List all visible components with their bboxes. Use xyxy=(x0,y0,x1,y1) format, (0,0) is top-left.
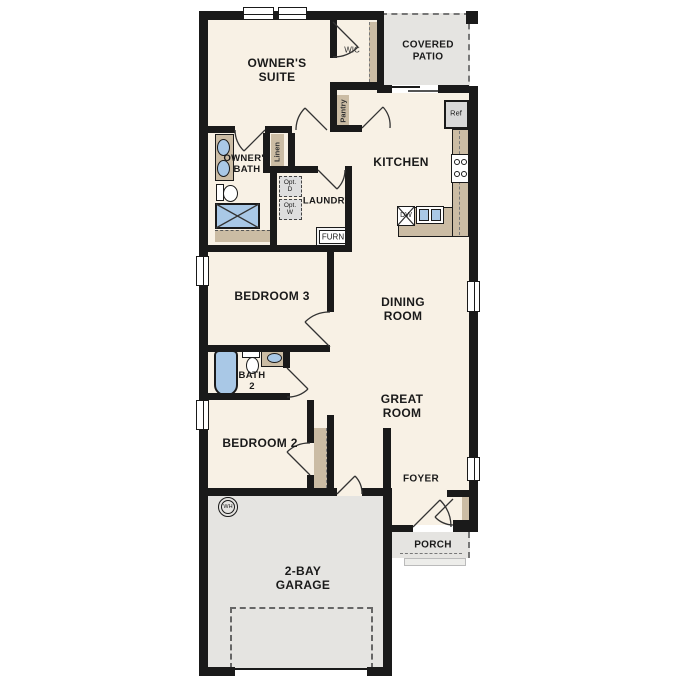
label-bedroom2: BEDROOM 2 xyxy=(222,437,297,451)
label-furn: FURN xyxy=(322,232,344,241)
label-pantry: Pantry xyxy=(339,99,348,122)
label-kitchen: KITCHEN xyxy=(373,156,428,170)
label-owners-bath: OWNER'S BATH xyxy=(223,154,270,176)
label-garage: 2-BAY GARAGE xyxy=(276,565,330,593)
label-bedroom3: BEDROOM 3 xyxy=(234,290,309,304)
door-arc-laundry xyxy=(318,170,345,189)
label-owners-suite: OWNER'S SUITE xyxy=(248,57,307,85)
door-arc-owners-suite xyxy=(296,108,327,130)
label-water-heater: WH xyxy=(223,504,232,510)
label-covered-patio: COVERED PATIO xyxy=(402,40,454,63)
label-foyer: FOYER xyxy=(403,473,439,485)
label-linen: Linen xyxy=(273,142,282,162)
floor-plan: OWNER'S SUITE WIC COVERED PATIO OWNER'S … xyxy=(0,0,687,687)
label-dining-room: DINING ROOM xyxy=(381,296,425,324)
label-great-room: GREAT ROOM xyxy=(381,393,424,421)
label-opt-washer: Opt. W xyxy=(284,202,296,216)
door-arc-pantry xyxy=(362,107,390,128)
label-wic: WIC xyxy=(344,45,360,54)
door-arc-owners-bath xyxy=(235,130,265,151)
label-ref: Ref xyxy=(450,110,462,119)
shower-x-mark xyxy=(216,204,259,228)
door-arc-front-door xyxy=(413,500,451,527)
door-arc-bedroom3 xyxy=(305,312,330,347)
label-opt-dryer: Opt. D xyxy=(284,179,296,193)
label-porch: PORCH xyxy=(414,539,452,551)
door-arc-garage-entry xyxy=(337,476,362,494)
label-laundry: LAUNDRY xyxy=(303,197,351,208)
door-arc-bath2 xyxy=(287,368,308,397)
label-dw: DW xyxy=(400,212,412,220)
label-bath2: BATH 2 xyxy=(239,371,266,393)
